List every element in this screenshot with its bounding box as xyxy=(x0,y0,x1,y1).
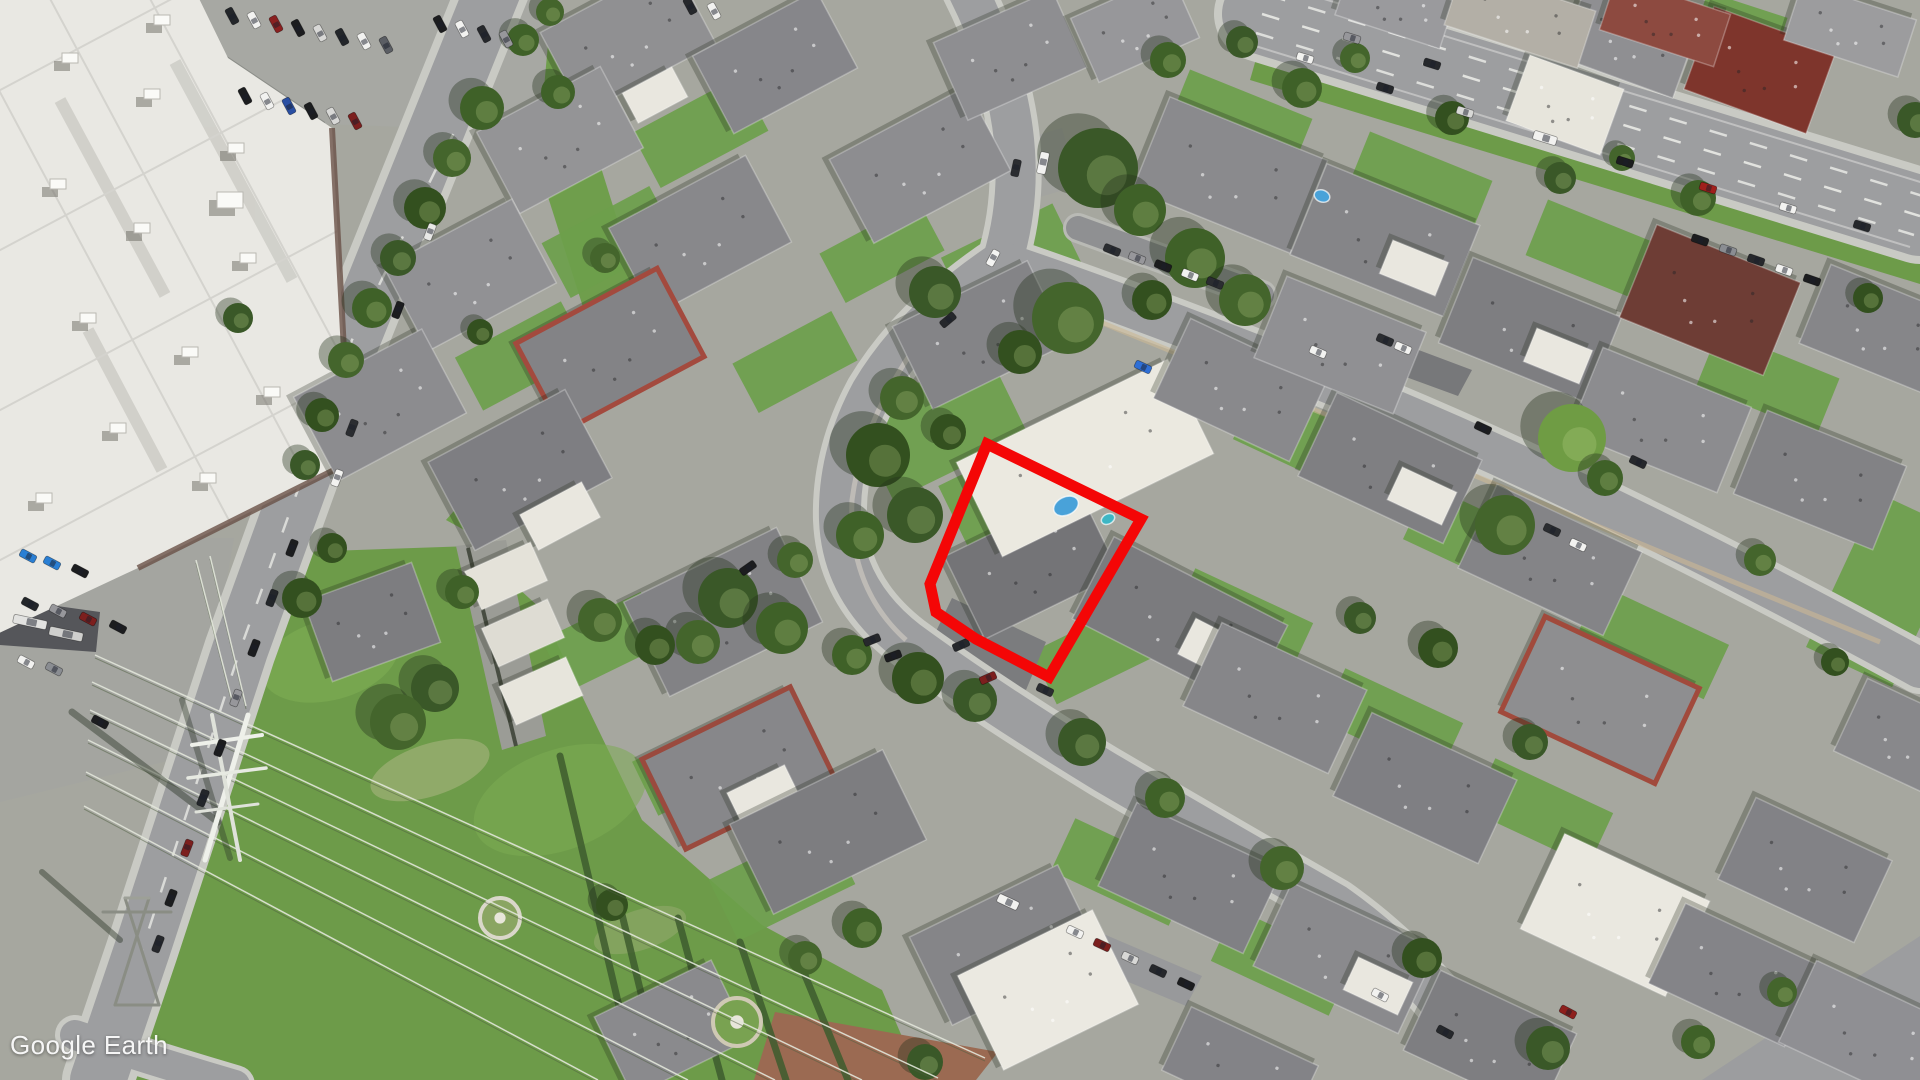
aerial-map-view[interactable]: Google Earth xyxy=(0,0,1920,1080)
aerial-svg xyxy=(0,0,1920,1080)
